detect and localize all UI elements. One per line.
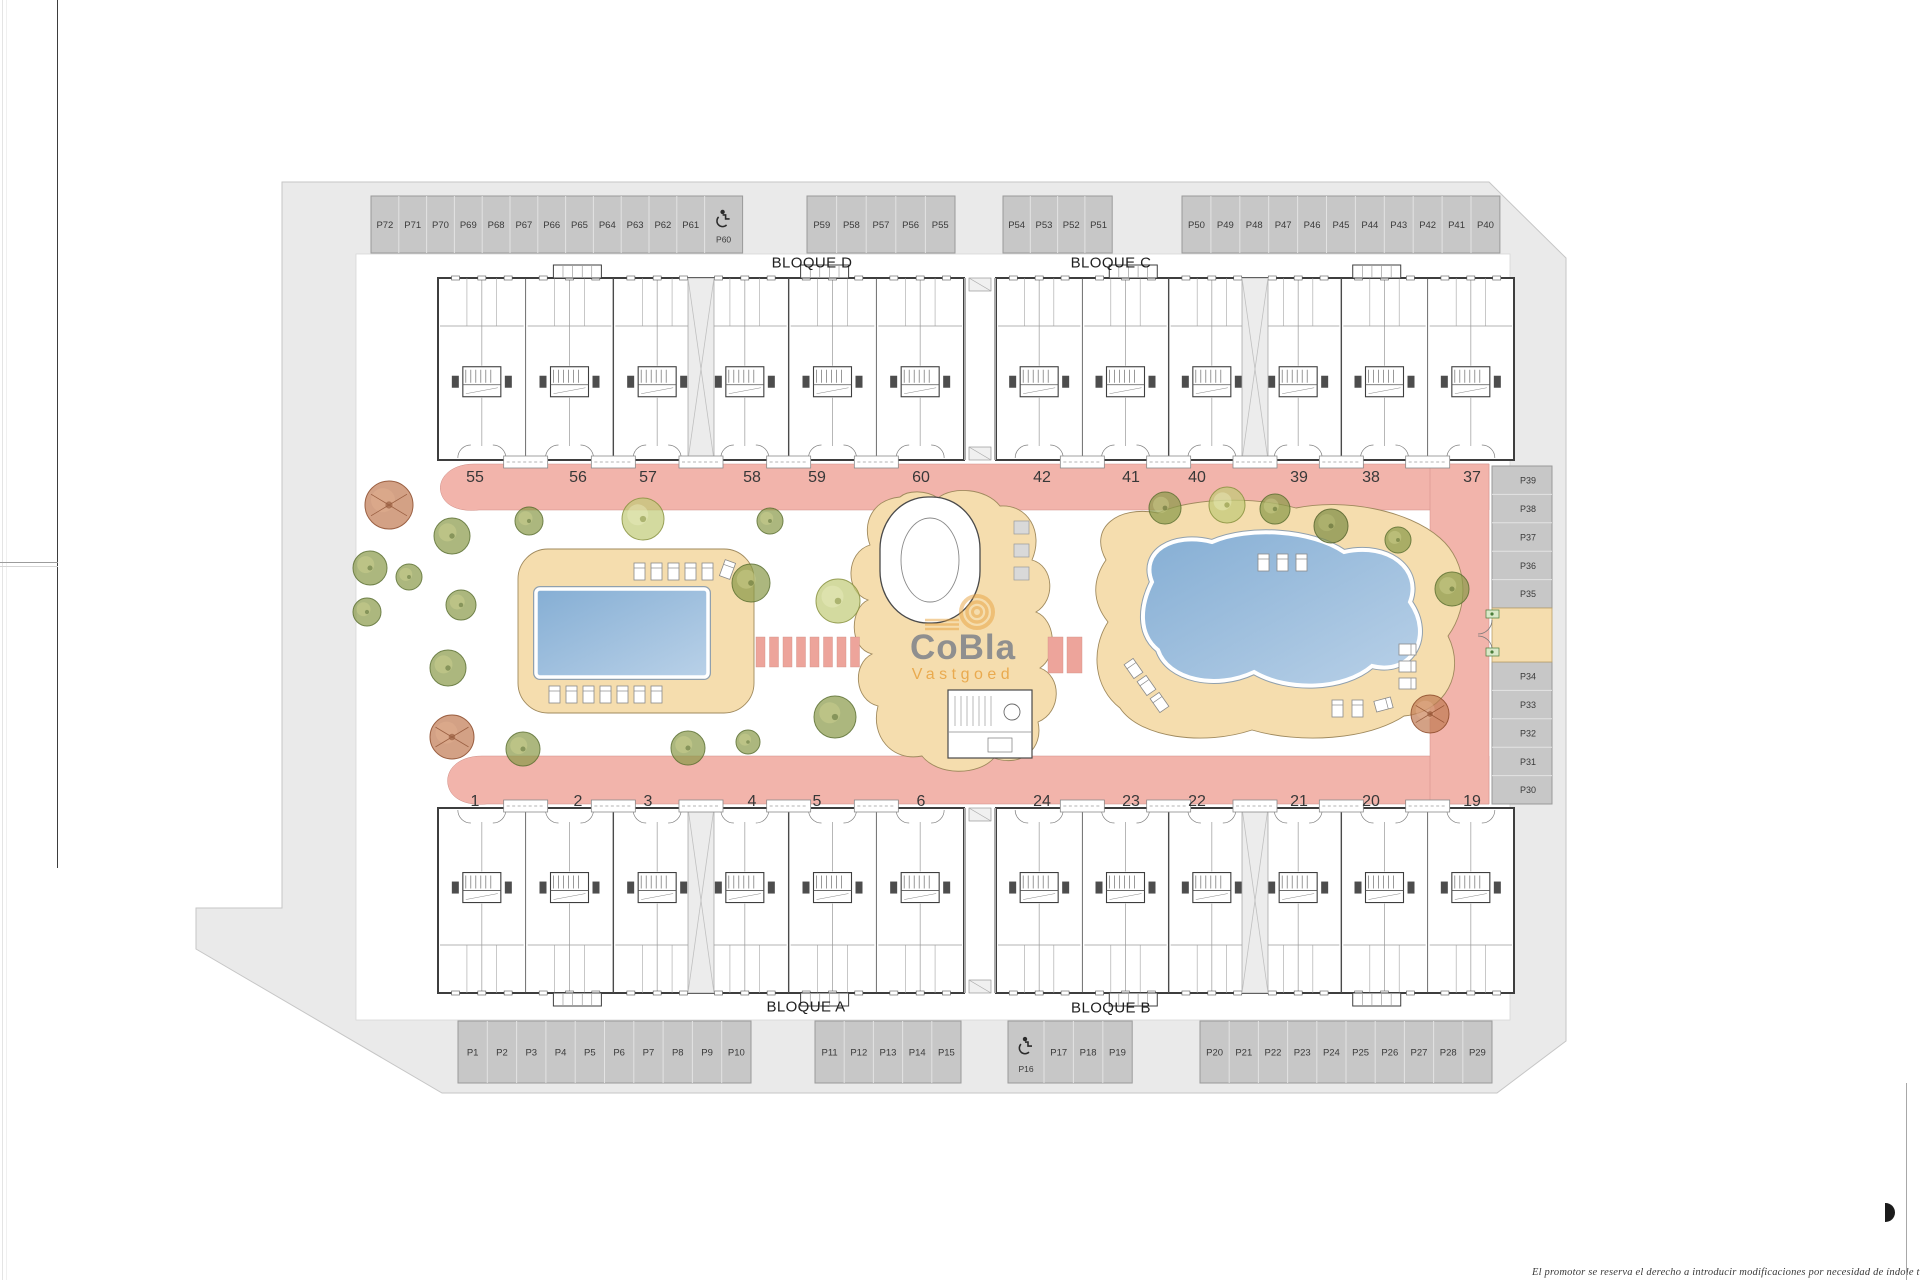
unit-number: 19 xyxy=(1463,793,1481,810)
unit-number: 56 xyxy=(569,469,587,486)
sunbed xyxy=(668,563,679,580)
parking-stall-P55: P55 xyxy=(932,220,949,231)
parking-stall-P28: P28 xyxy=(1440,1048,1457,1059)
stair-core xyxy=(814,873,852,903)
parking-stall-label: P27 xyxy=(1411,1048,1428,1059)
parking-stall-P46: P46 xyxy=(1304,220,1321,231)
parking-stall-label: P19 xyxy=(1109,1048,1126,1059)
parking-stall-P59: P59 xyxy=(813,220,830,231)
stair-core xyxy=(726,367,764,397)
tree-green xyxy=(671,731,705,765)
parking-stall-label: P15 xyxy=(938,1048,955,1059)
unit-number: 20 xyxy=(1362,793,1380,810)
parking-row-bottom-2: P16P17P18P19 xyxy=(1008,1021,1132,1083)
pool-left xyxy=(536,589,708,677)
parking-stall-label: P44 xyxy=(1361,220,1378,231)
parking-stall-P22: P22 xyxy=(1265,1048,1282,1059)
stair-protrusion xyxy=(1353,265,1401,278)
stair-core xyxy=(1279,367,1317,397)
parking-stall-label: P60 xyxy=(716,235,731,245)
building-block-B xyxy=(996,800,1514,1006)
parking-stall-P27: P27 xyxy=(1411,1048,1428,1059)
parking-stall-label: P43 xyxy=(1390,220,1407,231)
unit-number: 3 xyxy=(644,793,653,810)
parking-stall-label: P18 xyxy=(1080,1048,1097,1059)
stair-core xyxy=(1279,873,1317,903)
tree-green xyxy=(732,564,770,602)
tree-green xyxy=(446,590,476,620)
stair-core xyxy=(551,367,589,397)
parking-stall-label: P34 xyxy=(1520,672,1536,682)
tree-olive xyxy=(1314,509,1348,543)
parking-stall-P26: P26 xyxy=(1381,1048,1398,1059)
oval-court xyxy=(880,497,980,623)
parking-row-bottom-3: P20P21P22P23P24P25P26P27P28P29 xyxy=(1200,1021,1492,1083)
parking-stall-P21: P21 xyxy=(1235,1048,1252,1059)
parking-stall-label: P68 xyxy=(488,220,505,231)
parking-stall-P13: P13 xyxy=(880,1048,897,1059)
site-plan-drawing: P72P71P70P69P68P67P66P65P64P63P62P61P60P… xyxy=(0,0,1920,1280)
sunbed xyxy=(702,563,713,580)
parking-stall-P67: P67 xyxy=(515,220,532,231)
unit-number: 37 xyxy=(1463,469,1481,486)
parking-column-right-1: P34P33P32P31P30 xyxy=(1492,662,1552,804)
parking-stall-P24: P24 xyxy=(1323,1048,1340,1059)
stair-core xyxy=(463,873,501,903)
parking-stall-label: P46 xyxy=(1304,220,1321,231)
parking-stall-label: P52 xyxy=(1063,220,1080,231)
parking-stall-P45: P45 xyxy=(1332,220,1349,231)
parking-stall-label: P25 xyxy=(1352,1048,1369,1059)
parking-stall-P8: P8 xyxy=(672,1048,684,1059)
unit-number: 38 xyxy=(1362,469,1380,486)
parking-stall-label: P10 xyxy=(728,1048,745,1059)
sunbed xyxy=(651,686,662,703)
stair-core xyxy=(638,367,676,397)
parking-stall-label: P37 xyxy=(1520,532,1536,542)
parking-stall-label: P48 xyxy=(1246,220,1263,231)
unit-number: 57 xyxy=(639,469,657,486)
sunbed xyxy=(566,686,577,703)
stair-core xyxy=(1107,873,1145,903)
parking-stall-P62: P62 xyxy=(654,220,671,231)
bloque-a-label: BLOQUE A xyxy=(766,999,845,1016)
parking-column-right-0: P39P38P37P36P35 xyxy=(1492,466,1552,608)
parking-stall-P57: P57 xyxy=(873,220,890,231)
parking-stall-label: P6 xyxy=(613,1048,625,1059)
tree-green xyxy=(1149,492,1181,524)
parking-stall-label: P38 xyxy=(1520,504,1536,514)
parking-stall-label: P26 xyxy=(1381,1048,1398,1059)
unit-number: 41 xyxy=(1122,469,1140,486)
parking-stall-P71: P71 xyxy=(404,220,421,231)
sunbed xyxy=(583,686,594,703)
parking-stall-P48: P48 xyxy=(1246,220,1263,231)
parking-stall-P43: P43 xyxy=(1390,220,1407,231)
sunbed xyxy=(1399,661,1416,672)
parking-stall-label: P7 xyxy=(643,1048,655,1059)
parking-stall-P65: P65 xyxy=(571,220,588,231)
parking-row-top-3: P50P49P48P47P46P45P44P43P42P41P40 xyxy=(1182,196,1500,253)
parking-stall-label: P8 xyxy=(672,1048,684,1059)
parking-row-top-0: P72P71P70P69P68P67P66P65P64P63P62P61P60 xyxy=(371,196,743,253)
tree-green xyxy=(814,696,856,738)
tree-green xyxy=(353,598,381,626)
parking-stall-label: P69 xyxy=(460,220,477,231)
parking-stall-label: P22 xyxy=(1265,1048,1282,1059)
parking-stall-label: P13 xyxy=(880,1048,897,1059)
parking-stall-P63: P63 xyxy=(627,220,644,231)
sunbed xyxy=(1277,554,1288,571)
parking-stall-P68: P68 xyxy=(488,220,505,231)
parking-row-bottom-0: P1P2P3P4P5P6P7P8P9P10 xyxy=(458,1021,751,1083)
parking-stall-P61: P61 xyxy=(682,220,699,231)
parking-stall-P20: P20 xyxy=(1206,1048,1223,1059)
parking-stall-P58: P58 xyxy=(843,220,860,231)
parking-stall-P17: P17 xyxy=(1050,1048,1067,1059)
parking-stall-label: P39 xyxy=(1520,476,1536,486)
unit-number: 24 xyxy=(1033,793,1051,810)
parking-stall-label: P64 xyxy=(599,220,616,231)
parking-stall-label: P5 xyxy=(584,1048,596,1059)
disclaimer-text: El promotor se reserva el derecho a intr… xyxy=(1532,1267,1920,1278)
parking-stall-label: P3 xyxy=(525,1048,537,1059)
parking-stall-label: P17 xyxy=(1050,1048,1067,1059)
parking-stall-label: P2 xyxy=(496,1048,508,1059)
sunbed xyxy=(634,686,645,703)
unit-number: 59 xyxy=(808,469,826,486)
tree-green xyxy=(1260,494,1290,524)
page-fold-line xyxy=(0,562,58,563)
planter xyxy=(1014,567,1029,580)
parking-stall-P53: P53 xyxy=(1035,220,1052,231)
stair-core xyxy=(1452,873,1490,903)
parking-stall-label: P35 xyxy=(1520,589,1536,599)
parking-stall-label: P72 xyxy=(376,220,393,231)
parking-stall-label: P55 xyxy=(932,220,949,231)
unit-number: 55 xyxy=(466,469,484,486)
sunbed xyxy=(1352,700,1363,717)
parking-row-top-1: P59P58P57P56P55 xyxy=(807,196,955,253)
sunbed xyxy=(685,563,696,580)
parking-stall-label: P63 xyxy=(627,220,644,231)
parking-stall-label: P42 xyxy=(1419,220,1436,231)
stair-core xyxy=(463,367,501,397)
unit-number: 2 xyxy=(574,793,583,810)
parking-stall-P9: P9 xyxy=(701,1048,713,1059)
parking-stall-label: P1 xyxy=(467,1048,479,1059)
parking-stall-P44: P44 xyxy=(1361,220,1378,231)
bloque-d-label: BLOQUE D xyxy=(772,255,853,272)
parking-stall-P69: P69 xyxy=(460,220,477,231)
parking-stall-label: P47 xyxy=(1275,220,1292,231)
parking-stall-label: P9 xyxy=(701,1048,713,1059)
unit-number: 4 xyxy=(748,793,757,810)
parking-stall-label: P71 xyxy=(404,220,421,231)
stair-core xyxy=(638,873,676,903)
bloque-b-label: BLOQUE B xyxy=(1071,1000,1151,1017)
parking-stall-label: P24 xyxy=(1323,1048,1340,1059)
stair-core xyxy=(1366,367,1404,397)
parking-stall-label: P62 xyxy=(654,220,671,231)
stair-protrusion xyxy=(1353,993,1401,1006)
parking-stall-label: P14 xyxy=(909,1048,926,1059)
tree-green xyxy=(396,564,422,590)
unit-number: 58 xyxy=(743,469,761,486)
parking-stall-label: P70 xyxy=(432,220,449,231)
unit-number: 1 xyxy=(471,793,480,810)
parking-stall-P23: P23 xyxy=(1294,1048,1311,1059)
sunbed xyxy=(1258,554,1269,571)
parking-stall-label: P20 xyxy=(1206,1048,1223,1059)
stair-core xyxy=(551,873,589,903)
parking-stall-label: P23 xyxy=(1294,1048,1311,1059)
unit-number: 22 xyxy=(1188,793,1206,810)
parking-stall-P72: P72 xyxy=(376,220,393,231)
sunbed xyxy=(600,686,611,703)
parking-stall-label: P61 xyxy=(682,220,699,231)
parking-stall-label: P59 xyxy=(813,220,830,231)
parking-stall-label: P67 xyxy=(515,220,532,231)
parking-stall-label: P65 xyxy=(571,220,588,231)
parking-stall-label: P32 xyxy=(1520,728,1536,738)
parking-stall-P15: P15 xyxy=(938,1048,955,1059)
building-block-A xyxy=(438,800,964,1006)
parking-stall-P25: P25 xyxy=(1352,1048,1369,1059)
parking-stall-P64: P64 xyxy=(599,220,616,231)
building-block-D xyxy=(438,265,964,468)
unit-number: 21 xyxy=(1290,793,1308,810)
parking-stall-P14: P14 xyxy=(909,1048,926,1059)
parking-stall-label: P56 xyxy=(902,220,919,231)
parking-stall-label: P49 xyxy=(1217,220,1234,231)
parking-stall-label: P66 xyxy=(543,220,560,231)
bloque-c-label: BLOQUE C xyxy=(1071,255,1152,272)
page-edge-line xyxy=(6,0,7,1280)
parking-stall-label: P33 xyxy=(1520,700,1536,710)
unit-number: 42 xyxy=(1033,469,1051,486)
unit-number: 60 xyxy=(912,469,930,486)
stair-core xyxy=(814,367,852,397)
parking-stall-P4: P4 xyxy=(555,1048,567,1059)
parking-stall-label: P50 xyxy=(1188,220,1205,231)
parking-stall-P70: P70 xyxy=(432,220,449,231)
parking-stall-P56: P56 xyxy=(902,220,919,231)
stair-protrusion xyxy=(553,993,601,1006)
parking-stall-P11: P11 xyxy=(821,1048,837,1059)
parking-stall-P5: P5 xyxy=(584,1048,596,1059)
stair-core xyxy=(1366,873,1404,903)
tree-green xyxy=(515,507,543,535)
tree-green xyxy=(757,508,783,534)
block-corridor xyxy=(964,278,996,460)
tree-green xyxy=(430,650,466,686)
parking-stall-P1: P1 xyxy=(467,1048,479,1059)
unit-number: 6 xyxy=(917,793,926,810)
tree-red xyxy=(430,715,474,759)
parking-stall-P49: P49 xyxy=(1217,220,1234,231)
stair-core xyxy=(901,367,939,397)
parking-stall-P47: P47 xyxy=(1275,220,1292,231)
parking-stall-label: P12 xyxy=(850,1048,867,1059)
planter xyxy=(1014,544,1029,557)
parking-stall-P41: P41 xyxy=(1448,220,1465,231)
tree-green xyxy=(353,551,387,585)
parking-stall-P52: P52 xyxy=(1063,220,1080,231)
parking-stall-P40: P40 xyxy=(1477,220,1494,231)
stair-core xyxy=(1020,367,1058,397)
parking-stall-label: P29 xyxy=(1469,1048,1486,1059)
parking-stall-label: P57 xyxy=(873,220,890,231)
stair-core xyxy=(1452,367,1490,397)
planter xyxy=(1014,521,1029,534)
tree-green xyxy=(736,730,760,754)
parking-stall-label: P16 xyxy=(1018,1064,1033,1074)
block-corridor xyxy=(964,808,996,993)
parking-stall-label: P28 xyxy=(1440,1048,1457,1059)
tree-red xyxy=(365,481,413,529)
page-fold-line xyxy=(57,0,58,868)
unit-number: 23 xyxy=(1122,793,1140,810)
parking-stall-label: P36 xyxy=(1520,561,1536,571)
sunbed xyxy=(549,686,560,703)
parking-row-top-2: P54P53P52P51 xyxy=(1003,196,1112,253)
parking-stall-label: P40 xyxy=(1477,220,1494,231)
page-fold-line xyxy=(0,566,58,567)
tree-green xyxy=(434,518,470,554)
parking-stall-label: P53 xyxy=(1035,220,1052,231)
unit-number: 39 xyxy=(1290,469,1308,486)
stair-protrusion xyxy=(553,265,601,278)
unit-number: 5 xyxy=(813,793,822,810)
parking-stall-label: P30 xyxy=(1520,785,1536,795)
parking-stall-P29: P29 xyxy=(1469,1048,1486,1059)
parking-stall-P12: P12 xyxy=(850,1048,867,1059)
stair-core xyxy=(726,873,764,903)
sunbed xyxy=(634,563,645,580)
parking-stall-P2: P2 xyxy=(496,1048,508,1059)
tree-lime xyxy=(622,498,664,540)
parking-stall-label: P41 xyxy=(1448,220,1465,231)
parking-stall-P50: P50 xyxy=(1188,220,1205,231)
parking-stall-label: P54 xyxy=(1008,220,1025,231)
stair-core xyxy=(1193,367,1231,397)
unit-number: 40 xyxy=(1188,469,1206,486)
site-plan-canvas: P72P71P70P69P68P67P66P65P64P63P62P61P60P… xyxy=(0,0,1920,1280)
parking-stall-P19: P19 xyxy=(1109,1048,1126,1059)
parking-stall-label: P21 xyxy=(1235,1048,1252,1059)
stair-core xyxy=(1107,367,1145,397)
sunbed xyxy=(617,686,628,703)
tree-lime xyxy=(1209,487,1245,523)
parking-stall-label: P11 xyxy=(821,1048,837,1059)
parking-stall-P3: P3 xyxy=(525,1048,537,1059)
parking-stall-P42: P42 xyxy=(1419,220,1436,231)
building-block-C xyxy=(996,265,1514,468)
parking-stall-P54: P54 xyxy=(1008,220,1025,231)
parking-stall-label: P51 xyxy=(1090,220,1107,231)
parking-stall-label: P58 xyxy=(843,220,860,231)
tree-lime xyxy=(816,579,860,623)
page-edge-line xyxy=(2,0,3,1280)
sunbed xyxy=(1399,678,1416,689)
parking-stall-P6: P6 xyxy=(613,1048,625,1059)
parking-stall-label: P4 xyxy=(555,1048,567,1059)
parking-stall-P18: P18 xyxy=(1080,1048,1097,1059)
tree-green xyxy=(506,732,540,766)
stair-core xyxy=(1193,873,1231,903)
parking-stall-P51: P51 xyxy=(1090,220,1107,231)
tree-red xyxy=(1411,695,1449,733)
parking-stall-label: P31 xyxy=(1520,757,1536,767)
stair-core xyxy=(901,873,939,903)
sunbed xyxy=(1399,644,1416,655)
sunbed xyxy=(1332,700,1343,717)
parking-stall-label: P45 xyxy=(1332,220,1349,231)
stair-core xyxy=(1020,873,1058,903)
sunbed xyxy=(651,563,662,580)
tree-green xyxy=(1435,572,1469,606)
parking-row-bottom-1: P11P12P13P14P15 xyxy=(815,1021,961,1083)
parking-stall-P10: P10 xyxy=(728,1048,745,1059)
page-margin-line xyxy=(1906,1083,1907,1280)
parking-stall-P7: P7 xyxy=(643,1048,655,1059)
parking-stall-P66: P66 xyxy=(543,220,560,231)
sunbed xyxy=(1296,554,1307,571)
tree-green xyxy=(1385,527,1411,553)
